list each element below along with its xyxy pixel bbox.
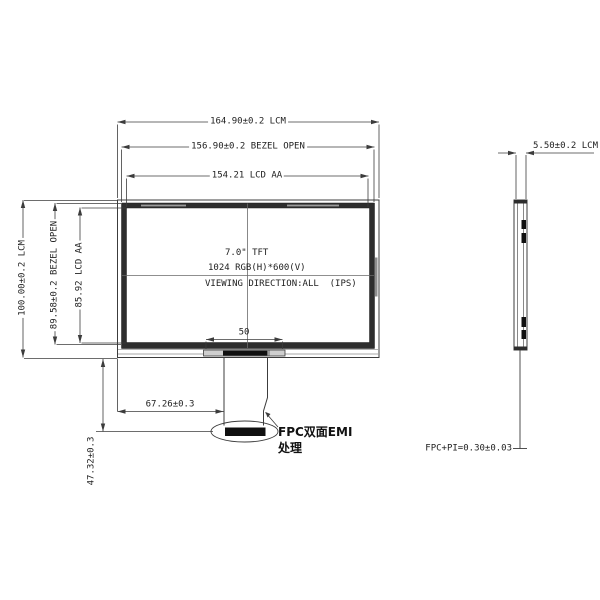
dim-height-lcd-aa: 85.92 LCD AA — [75, 240, 86, 309]
dim-height-lcm: 100.00±0.2 LCM — [18, 238, 29, 318]
side-top-cap — [514, 200, 527, 204]
dim-width-lcd-aa: 154.21 LCD AA — [210, 171, 284, 182]
dim-fpc-thickness: FPC+PI=0.30±0.03 — [425, 444, 512, 455]
side-pad — [522, 233, 527, 243]
fpc-tail-outline — [224, 358, 268, 426]
connector-black-segment — [223, 351, 268, 356]
dim-width-lcm: 164.90±0.2 LCM — [208, 117, 288, 128]
side-pad — [522, 220, 527, 229]
dim-fpc-drop-length: 47.32±0.3 — [87, 435, 98, 488]
dim-thickness: 5.50±0.2 LCM — [533, 141, 598, 152]
lcm-mechanical-drawing: 164.90±0.2 LCM 156.90±0.2 BEZEL OPEN 154… — [0, 0, 600, 600]
side-pad — [522, 330, 527, 339]
side-bottom-cap — [514, 347, 527, 351]
fpc-connector — [204, 350, 286, 356]
emi-leader-arrow — [266, 412, 271, 418]
side-view — [498, 153, 594, 449]
spec-size: 7.0" TFT — [225, 248, 268, 259]
dim-height-bezel-open: 89.58±0.2 BEZEL OPEN — [50, 219, 61, 331]
dim-width-bezel-open: 156.90±0.2 BEZEL OPEN — [189, 142, 307, 153]
bezel-top-tab — [287, 205, 339, 207]
bezel-top-tab — [141, 205, 186, 207]
center-lines — [122, 204, 374, 349]
right-edge-mark — [375, 258, 378, 297]
side-pad — [522, 317, 527, 327]
thickness-dimension — [498, 153, 594, 199]
spec-resolution: 1024 RGB(H)*600(V) — [208, 263, 306, 274]
fpc-emi-note-line2: 处理 — [278, 441, 302, 455]
spec-viewing-direction: VIEWING DIRECTION:ALL (IPS) — [205, 279, 357, 290]
fpc-emi-note-line1: FPC双面EMI — [278, 425, 352, 439]
fpc-tail — [211, 358, 278, 443]
dim-fpc-offset: 67.26±0.3 — [144, 400, 197, 411]
drawing-geometry — [0, 0, 600, 600]
emi-shield-bar — [225, 428, 266, 437]
dim-fpc-connector-width: 50 — [237, 328, 252, 339]
